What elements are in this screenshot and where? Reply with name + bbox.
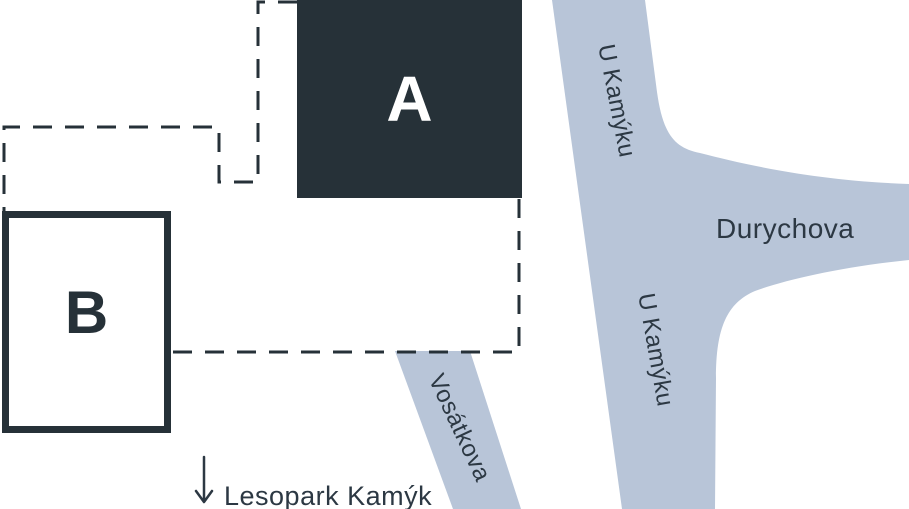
building-a: A — [297, 0, 522, 198]
building-b: B — [2, 211, 171, 433]
down-arrow-icon — [196, 457, 212, 502]
site-boundary-dashes-upper — [4, 2, 297, 211]
street-label-durychova: Durychova — [716, 213, 854, 245]
site-map: A B U Kamýku U Kamýku Vosátkova Durychov… — [0, 0, 909, 509]
lesopark-label: Lesopark Kamýk — [224, 481, 432, 509]
site-boundary-dashes-lower — [171, 199, 519, 352]
building-a-label: A — [386, 62, 432, 136]
building-b-label: B — [65, 278, 108, 347]
